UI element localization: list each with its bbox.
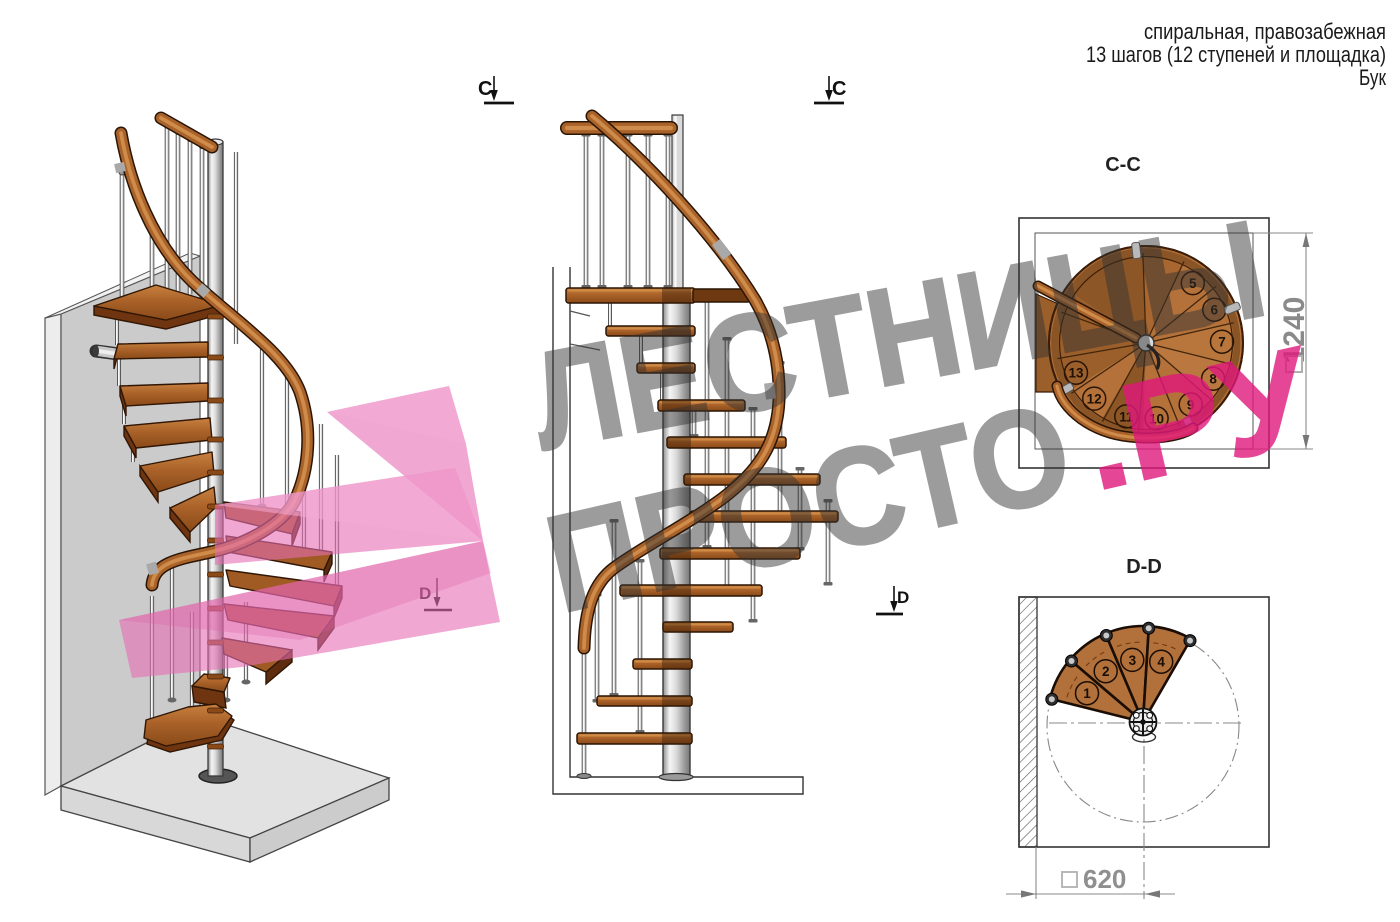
svg-text:D-D: D-D [1126,556,1162,578]
svg-text:1: 1 [1083,686,1091,701]
svg-text:D: D [897,588,909,607]
svg-text:C: C [832,78,846,100]
svg-text:C-C: C-C [1105,154,1141,176]
svg-text:13 шагов (12 ступеней и площад: 13 шагов (12 ступеней и площадка) [1086,42,1386,67]
svg-text:2: 2 [1102,664,1110,679]
svg-text:3: 3 [1129,653,1137,668]
svg-text:спиральная, правозабежная: спиральная, правозабежная [1144,19,1386,44]
svg-text:Бук: Бук [1359,65,1386,90]
svg-text:620: 620 [1083,864,1126,894]
svg-text:4: 4 [1157,655,1165,670]
svg-text:C: C [478,78,492,100]
